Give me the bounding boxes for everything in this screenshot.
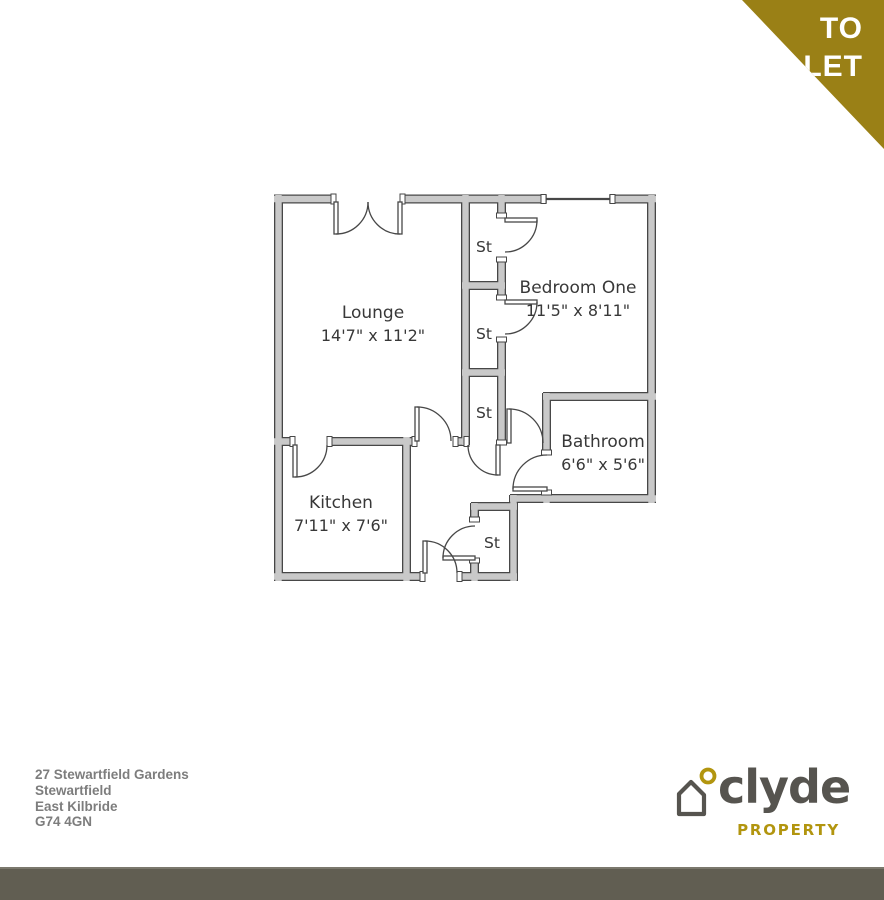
bedroom-one-dims: 11'5" x 8'11" — [526, 301, 630, 320]
floorplan-page: TO LET — [0, 0, 884, 900]
address-line-3: East Kilbride — [35, 799, 189, 815]
kitchen-dims: 7'11" x 7'6" — [294, 516, 388, 535]
bathroom-label: Bathroom — [561, 432, 645, 452]
storage2-label: St — [476, 325, 492, 343]
chimney-dot-icon — [702, 770, 715, 783]
lounge-hall-door — [415, 407, 451, 441]
bedroom-window — [546, 195, 610, 204]
storage1-door — [505, 218, 537, 252]
lounge-label: Lounge — [342, 303, 404, 323]
bathroom-dims: 6'6" x 5'6" — [561, 455, 645, 474]
bathroom-door — [513, 455, 547, 491]
storage3-door — [468, 445, 500, 475]
address-line-4: G74 4GN — [35, 814, 189, 830]
kitchen-label: Kitchen — [309, 493, 373, 513]
property-address: 27 Stewartfield Gardens Stewartfield Eas… — [35, 767, 189, 830]
storage1-label: St — [476, 238, 492, 256]
bedroom-one-label: Bedroom One — [520, 278, 637, 298]
clyde-property-logo: clyde PROPERTY — [668, 760, 840, 844]
address-line-2: Stewartfield — [35, 783, 189, 799]
logo-brand-text: clyde — [718, 760, 850, 814]
storage3-label: St — [476, 404, 492, 422]
bedroom-door — [507, 409, 543, 443]
storage4-label: St — [484, 534, 500, 552]
logo-tagline-text: PROPERTY — [737, 821, 840, 839]
address-line-1: 27 Stewartfield Gardens — [35, 767, 189, 783]
house-icon — [668, 764, 724, 820]
kitchen-door — [293, 445, 327, 477]
footer-bar — [0, 867, 884, 900]
lounge-dims: 14'7" x 11'2" — [321, 326, 425, 345]
storage4-door — [443, 526, 475, 560]
lounge-french-doors — [334, 202, 402, 234]
